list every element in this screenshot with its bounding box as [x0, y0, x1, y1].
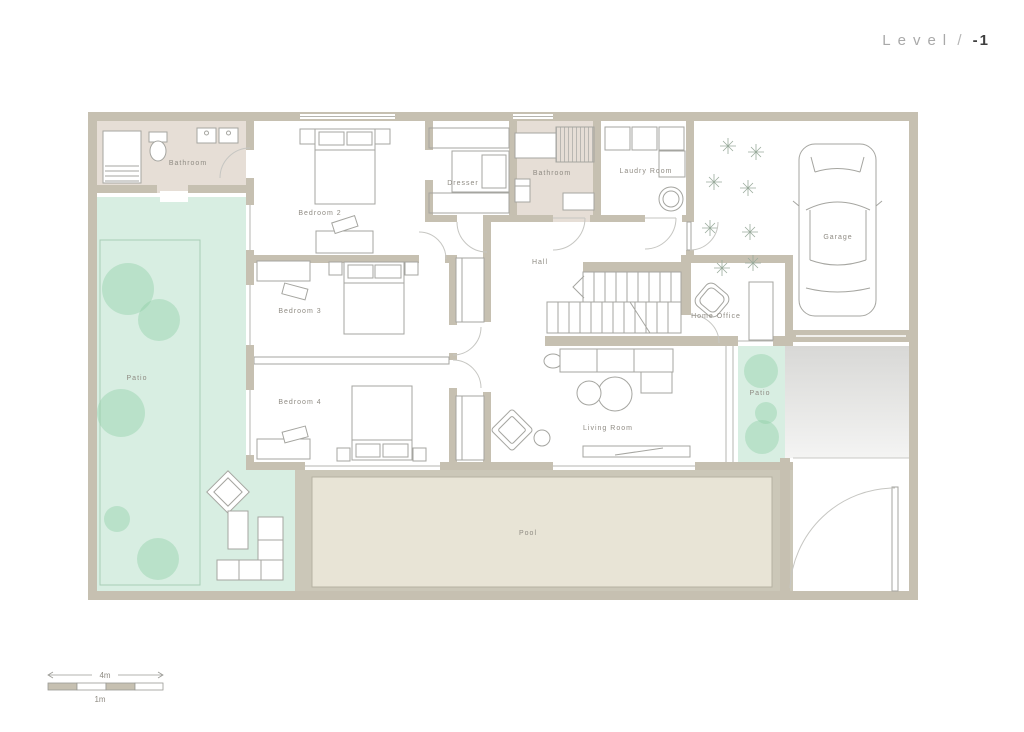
side-table-icon — [544, 354, 562, 368]
label-hall: Hall — [532, 259, 548, 266]
thin-partition — [254, 357, 449, 364]
scale-segment — [77, 683, 106, 690]
outdoor-sofa-icon — [217, 560, 283, 580]
sofa-icon — [560, 349, 673, 372]
label-bathroom-1: Bathroom — [169, 160, 207, 167]
car-icon — [793, 144, 882, 316]
label-home-office: Home Office — [691, 313, 741, 320]
nightstand-icon — [329, 262, 342, 275]
sofa-chaise-icon — [641, 372, 672, 393]
desk-icon — [749, 282, 773, 340]
label-bedroom-3: Bedroom 3 — [278, 308, 321, 315]
cabinet-icon — [605, 127, 630, 150]
tree-icon — [744, 354, 778, 388]
shower-icon — [103, 131, 141, 183]
label-living-room: Living Room — [583, 425, 633, 432]
tree-icon — [97, 389, 145, 437]
label-laundry-room: Laudry Room — [619, 168, 672, 175]
scale-segment — [106, 683, 135, 690]
tree-icon — [745, 420, 779, 454]
side-table-icon — [534, 430, 550, 446]
scale-segment — [135, 683, 163, 690]
tree-icon — [138, 299, 180, 341]
floor-plan-drawing: Bathroom Bedroom 2 Dresser Bathroom Laud… — [0, 0, 1024, 732]
coffee-table-icon — [577, 381, 601, 405]
scale-minor-label: 1m — [94, 695, 105, 704]
scale-major-label: 4m — [99, 671, 110, 680]
nightstand-icon — [337, 448, 350, 461]
gate-leaf — [892, 487, 898, 591]
toilet-icon — [515, 179, 530, 202]
label-patio-right: Patio — [750, 390, 771, 397]
desk-icon — [257, 439, 310, 459]
desk-icon — [316, 231, 373, 253]
label-bedroom-2: Bedroom 2 — [298, 210, 341, 217]
label-bathroom-2: Bathroom — [533, 170, 571, 177]
tree-icon — [137, 538, 179, 580]
desk-icon — [257, 261, 310, 281]
nightstand-icon — [375, 129, 390, 144]
floor-plan-page: Level / -1 — [0, 0, 1024, 732]
label-garage: Garage — [823, 234, 852, 241]
cabinet-icon — [659, 127, 684, 150]
sink-icon — [563, 193, 594, 210]
closet-icon — [456, 258, 484, 322]
glass-partition — [722, 346, 736, 462]
scale-segment — [48, 683, 77, 690]
closet-icon — [456, 396, 484, 460]
label-bedroom-4: Bedroom 4 — [278, 399, 321, 406]
cabinet-icon — [632, 127, 657, 150]
lounger-icon — [228, 511, 248, 549]
label-dresser: Dresser — [447, 180, 479, 187]
scale-bar: 4m 1m — [48, 671, 163, 704]
nightstand-icon — [405, 262, 418, 275]
pool-water — [312, 477, 772, 587]
toilet-icon — [149, 132, 167, 161]
nightstand-icon — [413, 448, 426, 461]
coffee-table-icon — [598, 377, 632, 411]
driveway-floor — [785, 346, 909, 458]
tree-icon — [104, 506, 130, 532]
nightstand-icon — [300, 129, 315, 144]
bath-window — [515, 133, 556, 158]
label-patio-left: Patio — [127, 375, 148, 382]
label-pool: Pool — [519, 530, 537, 537]
shower-icon — [556, 127, 594, 162]
patio-doorstep — [160, 191, 188, 202]
